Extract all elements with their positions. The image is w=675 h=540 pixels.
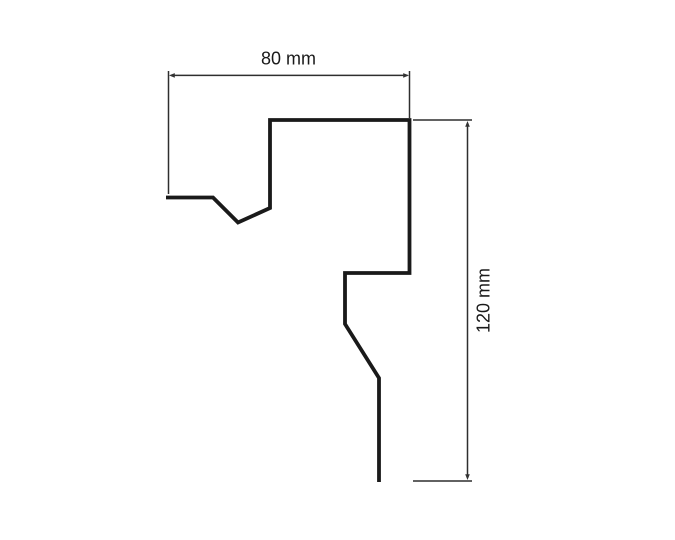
svg-text:80 mm: 80 mm <box>261 49 316 69</box>
svg-text:120 mm: 120 mm <box>474 268 494 333</box>
